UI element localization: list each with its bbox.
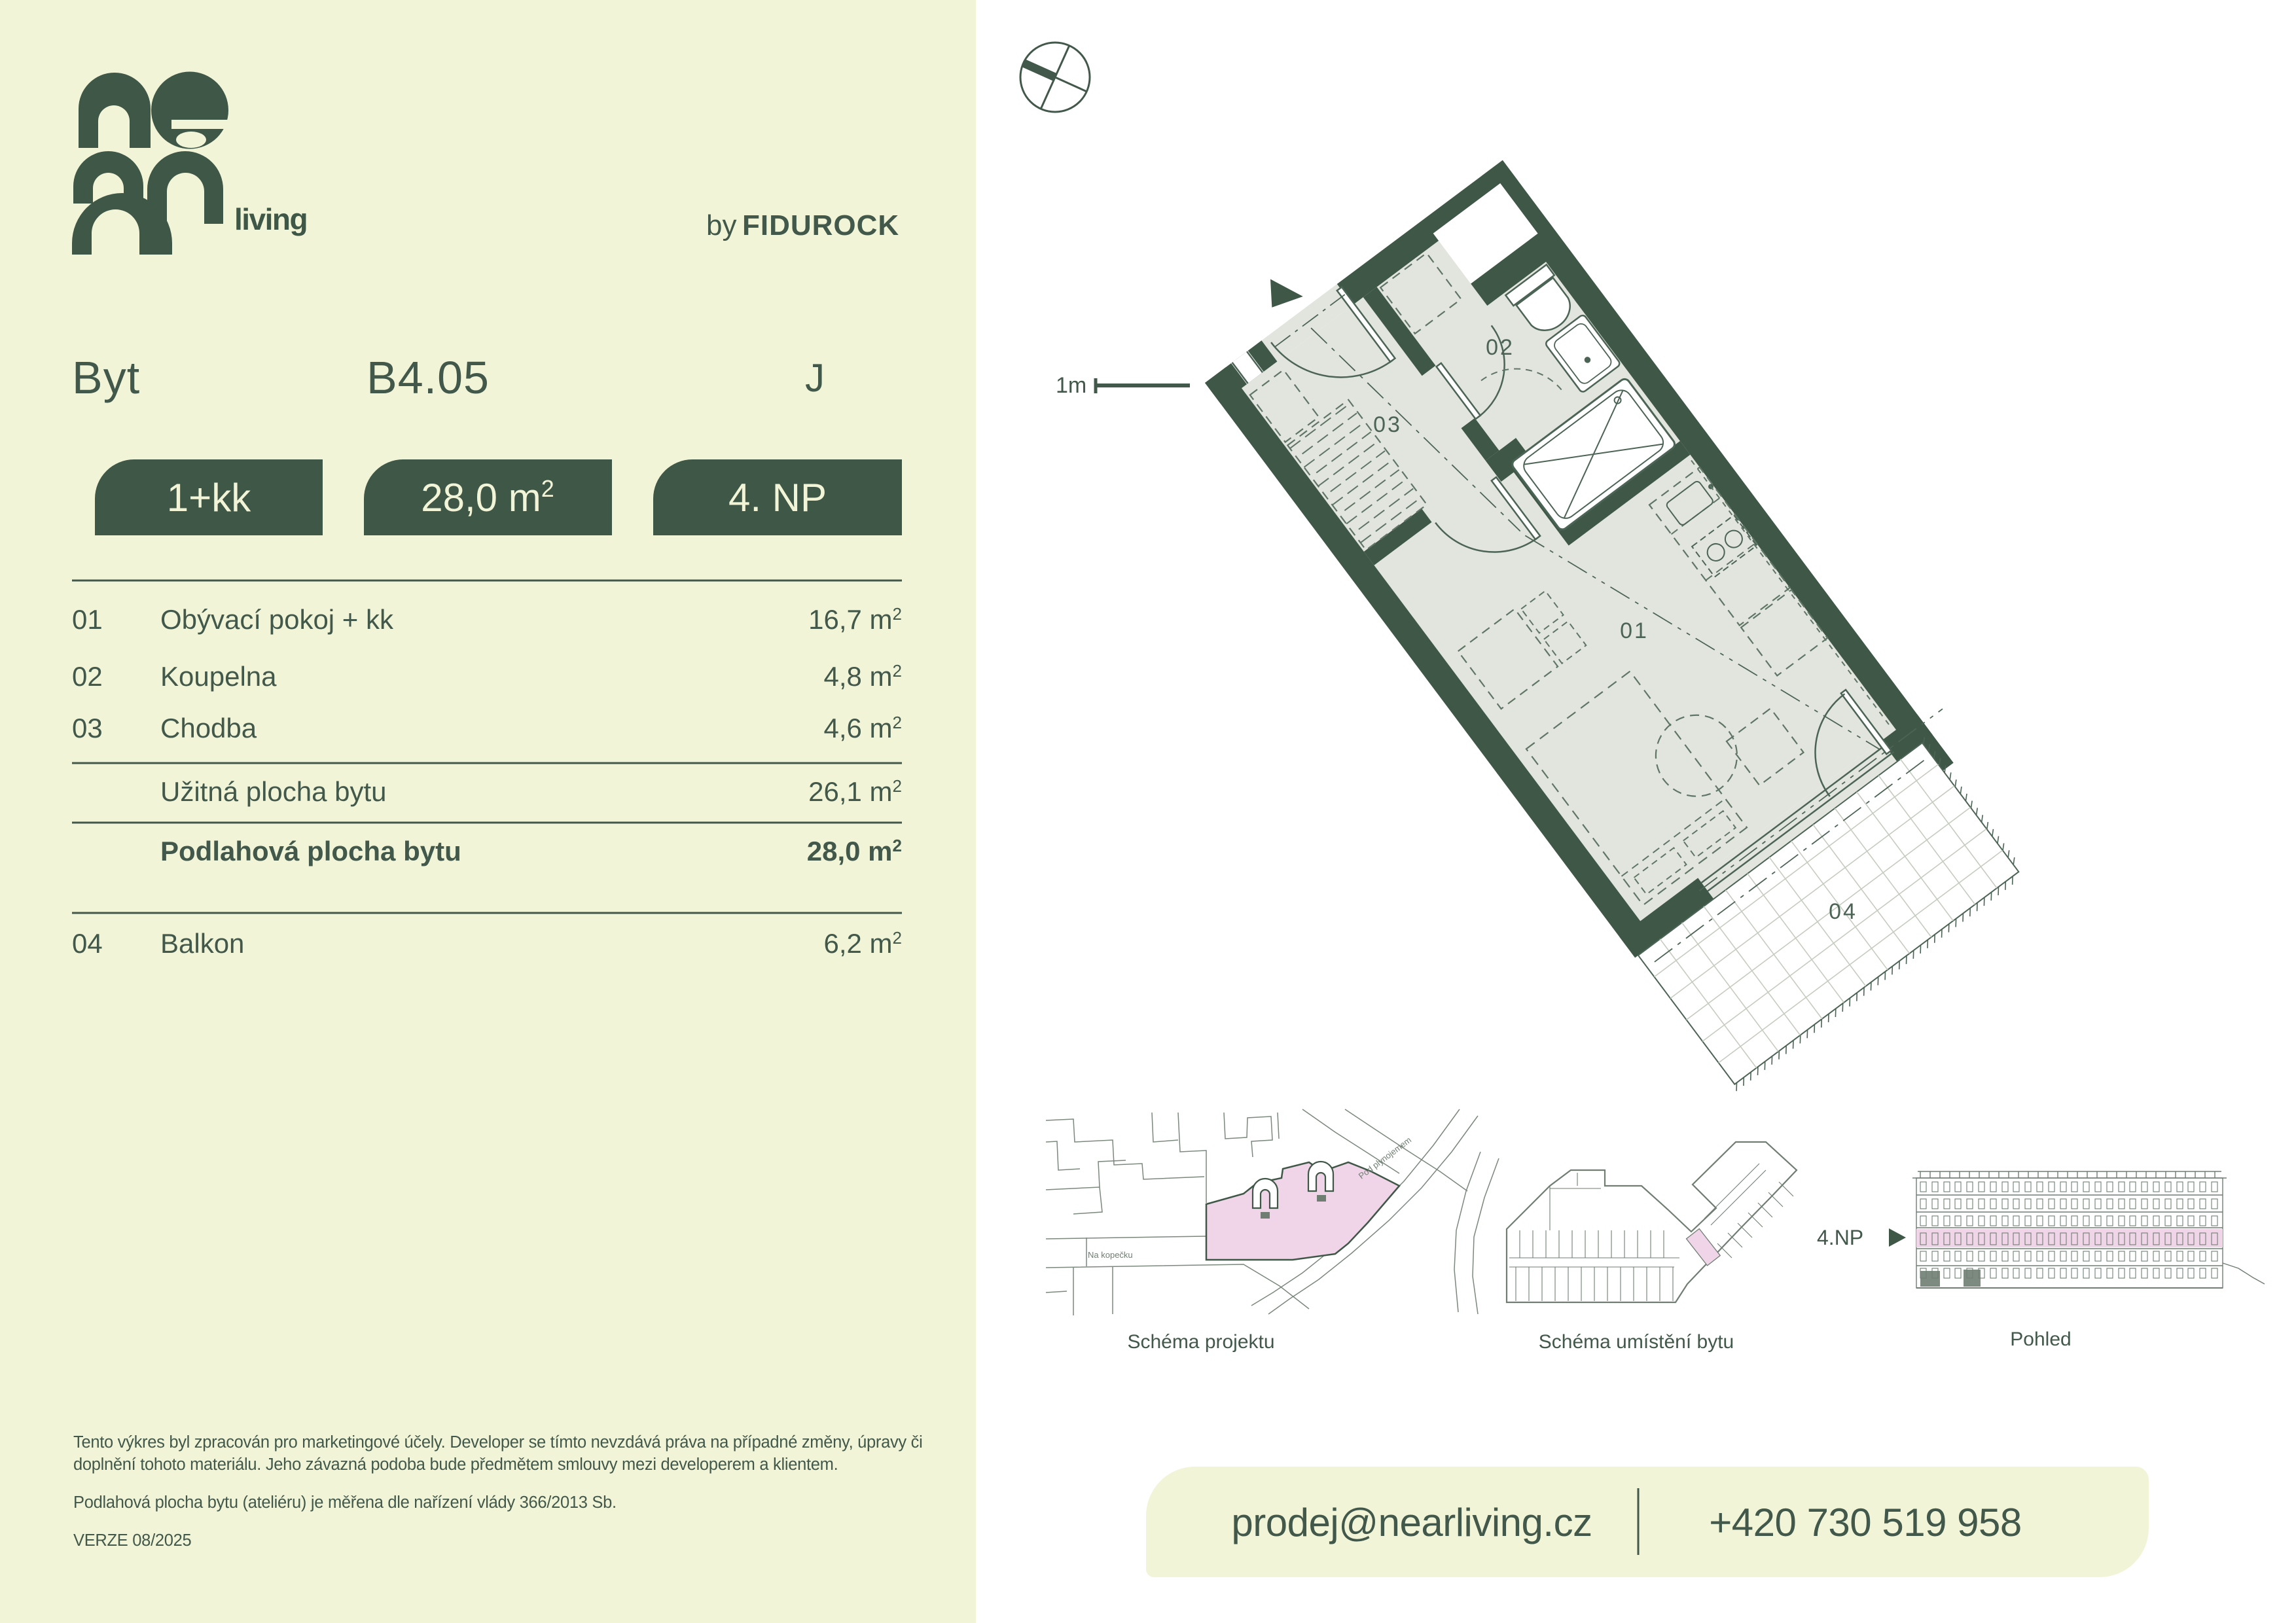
svg-text:16,7 m2: 16,7 m2 <box>808 604 902 635</box>
svg-text:Podlahová plocha bytu (ateliér: Podlahová plocha bytu (ateliéru) je měře… <box>73 1493 617 1512</box>
svg-text:Balkon: Balkon <box>160 928 244 959</box>
svg-text:Na kopečku: Na kopečku <box>1088 1250 1133 1260</box>
svg-text:26,1 m2: 26,1 m2 <box>808 776 902 807</box>
svg-text:doplnění tohoto materiálu. Jeh: doplnění tohoto materiálu. Jeho závazná … <box>73 1455 838 1474</box>
svg-text:03: 03 <box>1373 412 1402 437</box>
svg-text:4.NP: 4.NP <box>1817 1226 1863 1249</box>
svg-text:04: 04 <box>72 928 103 959</box>
svg-text:Byt: Byt <box>72 352 140 403</box>
svg-text:6,2 m2: 6,2 m2 <box>823 928 902 959</box>
svg-text:1m: 1m <box>1056 373 1086 398</box>
svg-text:FIDUROCK: FIDUROCK <box>742 209 899 241</box>
svg-text:Užitná plocha bytu: Užitná plocha bytu <box>160 776 387 807</box>
svg-text:01: 01 <box>72 604 103 635</box>
svg-text:4,8 m2: 4,8 m2 <box>823 661 902 692</box>
svg-text:04: 04 <box>1829 899 1857 924</box>
svg-text:Chodba: Chodba <box>160 713 257 743</box>
svg-text:+420 730 519 958: +420 730 519 958 <box>1709 1501 2021 1544</box>
svg-text:living: living <box>234 202 307 236</box>
svg-text:Pohled: Pohled <box>2010 1329 2071 1350</box>
svg-text:03: 03 <box>72 713 103 743</box>
svg-text:Podlahová plocha bytu: Podlahová plocha bytu <box>160 836 461 866</box>
svg-text:01: 01 <box>1620 618 1649 643</box>
svg-text:J: J <box>805 356 825 400</box>
svg-text:VERZE 08/2025: VERZE 08/2025 <box>73 1531 191 1550</box>
svg-text:4,6 m2: 4,6 m2 <box>823 713 902 743</box>
svg-text:B4.05: B4.05 <box>367 352 490 403</box>
svg-text:02: 02 <box>1486 335 1515 360</box>
svg-text:Obývací pokoj + kk: Obývací pokoj + kk <box>160 604 394 635</box>
svg-text:Tento výkres byl zpracován pro: Tento výkres byl zpracován pro marketing… <box>73 1433 922 1452</box>
svg-text:28,0 m2: 28,0 m2 <box>421 475 554 520</box>
svg-text:1+kk: 1+kk <box>167 476 251 520</box>
svg-text:Schéma umístění bytu: Schéma umístění bytu <box>1539 1331 1734 1353</box>
svg-text:28,0 m2: 28,0 m2 <box>807 836 902 866</box>
svg-text:4. NP: 4. NP <box>728 476 827 520</box>
svg-text:prodej@nearliving.cz: prodej@nearliving.cz <box>1231 1501 1592 1544</box>
svg-text:Koupelna: Koupelna <box>160 661 277 692</box>
svg-text:02: 02 <box>72 661 103 692</box>
svg-text:by: by <box>706 209 736 241</box>
svg-text:Schéma projektu: Schéma projektu <box>1127 1331 1274 1353</box>
